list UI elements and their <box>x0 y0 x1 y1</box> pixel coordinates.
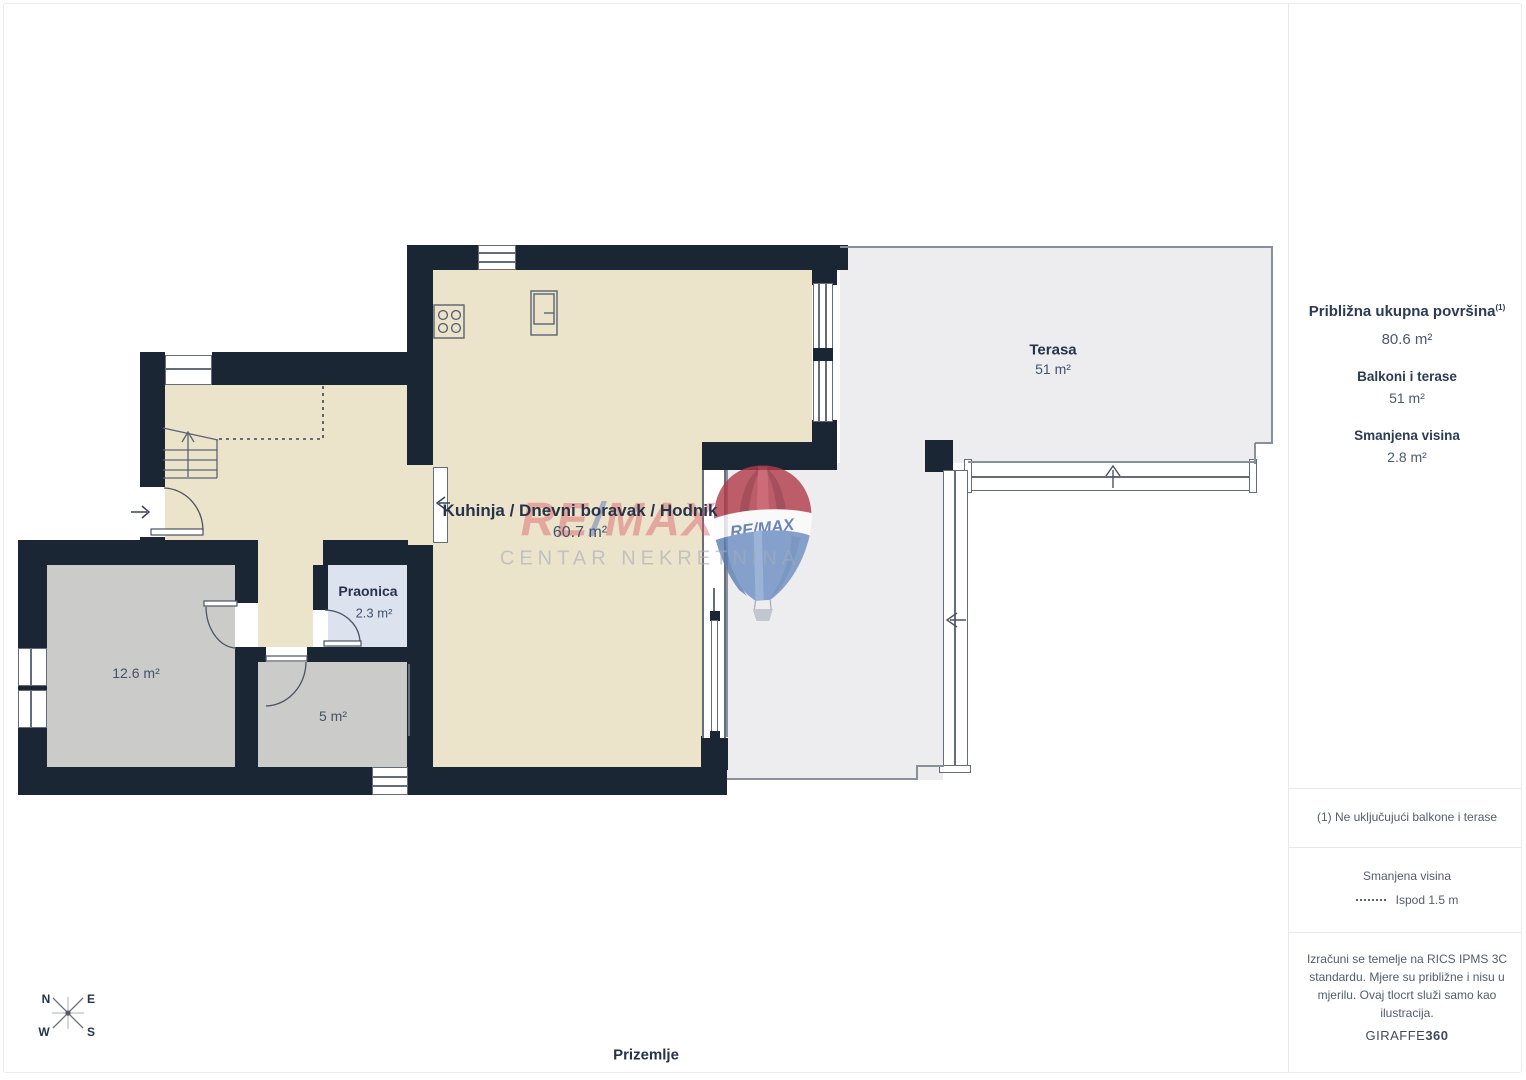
terrace-outline <box>968 461 1256 463</box>
balconies-label: Balkoni i terase <box>1288 369 1526 384</box>
wall-segment <box>313 565 328 610</box>
wall-segment <box>323 540 408 565</box>
legend-value: Ispod 1.5 m <box>1396 893 1459 907</box>
window <box>18 648 47 686</box>
door-opening <box>235 603 258 647</box>
terrace-floor <box>727 470 943 780</box>
terrace-railing-line <box>954 470 956 767</box>
sliding-door-mullion <box>710 731 720 741</box>
wall-segment <box>701 736 728 770</box>
compass-n-label: N <box>42 992 51 1006</box>
reduced-height-value: 2.8 m² <box>1288 449 1526 465</box>
door-opening <box>140 487 165 537</box>
total-area-label: Približna ukupna površina(1) <box>1288 303 1526 320</box>
window-pane-line <box>478 261 516 263</box>
dotted-line-icon <box>1356 899 1386 903</box>
wall-segment <box>812 420 837 470</box>
wall-segment <box>235 647 258 767</box>
terrace-outline <box>840 246 1273 248</box>
wall-segment <box>140 385 165 487</box>
terrace-railing-line <box>968 476 1257 478</box>
pocket-door-line <box>408 664 410 736</box>
window <box>18 690 47 728</box>
door-opening <box>266 647 307 662</box>
reduced-height-label: Smanjena visina <box>1288 428 1526 443</box>
floorplan-page: N E W S RE/MAX RE/MAX CENTAR NEKRETNINA … <box>0 0 1526 1080</box>
wall-segment <box>18 767 372 795</box>
wall-segment <box>212 352 408 385</box>
terrace-pillar <box>925 440 953 472</box>
window-pane-line <box>478 252 516 254</box>
hall-floor <box>165 385 408 540</box>
wall-segment <box>258 647 266 662</box>
wall-segment <box>307 647 412 662</box>
wall-segment <box>407 245 433 465</box>
wall-segment <box>702 442 812 470</box>
terrace-outline <box>916 766 918 779</box>
wall-segment <box>18 540 258 565</box>
wall-segment <box>235 562 258 603</box>
terrace-outline <box>916 765 944 767</box>
room-left-area: 12.6 m² <box>112 665 159 681</box>
window-pane-line <box>165 368 212 370</box>
room-small-area: 5 m² <box>319 708 347 724</box>
sliding-door <box>711 620 718 732</box>
sidebar-divider <box>1288 932 1522 933</box>
sidebar-divider-vertical <box>1288 4 1289 1072</box>
sidebar-divider <box>1288 788 1522 789</box>
wall-segment <box>516 245 848 270</box>
room-main-area: 60.7 m² <box>553 524 607 542</box>
giraffe-logo-360: 360 <box>1425 1028 1448 1043</box>
compass-e-label: E <box>87 992 95 1006</box>
sidebar-divider <box>1288 847 1522 848</box>
window <box>478 245 516 270</box>
railing-post <box>1249 459 1257 493</box>
room-main-floor <box>433 270 812 442</box>
sliding-door-mullion <box>813 348 833 361</box>
legend-title: Smanjena visina <box>1288 869 1526 883</box>
watermark-subtitle: CENTAR NEKRETNINA <box>500 548 800 571</box>
floor-label: Prizemlje <box>613 1047 679 1064</box>
window <box>165 355 212 385</box>
compass-s-label: S <box>87 1025 95 1039</box>
terrace-floor <box>840 443 1255 463</box>
giraffe-logo-text: GIRAFFE <box>1365 1028 1425 1043</box>
room-laundry-label: Praonica <box>338 583 397 599</box>
terrace-outline <box>1271 248 1273 444</box>
room-terrace-area: 51 m² <box>1035 361 1071 377</box>
terrace-outline <box>1255 442 1273 444</box>
room-main-label: Kuhinja / Dnevni boravak / Hodnik <box>443 501 718 521</box>
wall-segment <box>18 540 47 648</box>
window <box>372 767 408 795</box>
door-opening <box>313 610 328 647</box>
window-pane-line <box>30 690 32 728</box>
disclaimer-text: Izračuni se temelje na RICS IPMS 3C stan… <box>1303 950 1511 1022</box>
terrace-outline <box>727 778 918 780</box>
doorway-hall-kitchen <box>407 465 433 545</box>
room-terrace-label: Terasa <box>1029 342 1076 359</box>
wall-segment <box>18 728 47 767</box>
measurements-sidebar: Približna ukupna površina(1) 80.6 m² Bal… <box>1288 0 1526 1080</box>
window-pane-line <box>372 776 408 778</box>
balconies-value: 51 m² <box>1288 390 1526 406</box>
wall-segment <box>408 767 727 795</box>
wall-segment <box>140 352 165 385</box>
window-pane-line <box>372 785 408 787</box>
window-pane-line <box>30 648 32 686</box>
wall-segment <box>812 248 837 285</box>
total-area-label-text: Približna ukupna površina <box>1309 303 1496 320</box>
footnote-text: (1) Ne uključujući balkone i terase <box>1288 810 1526 824</box>
total-area-value: 80.6 m² <box>1288 331 1526 348</box>
compass-w-label: W <box>38 1025 50 1039</box>
giraffe360-logo: GIRAFFE360 <box>1288 1028 1526 1043</box>
terrace-outline <box>726 470 728 737</box>
room-laundry-area: 2.3 m² <box>356 606 393 621</box>
compass-icon: N E W S <box>38 992 95 1039</box>
total-area-superscript: (1) <box>1495 303 1505 312</box>
legend-row: Ispod 1.5 m <box>1288 893 1526 907</box>
